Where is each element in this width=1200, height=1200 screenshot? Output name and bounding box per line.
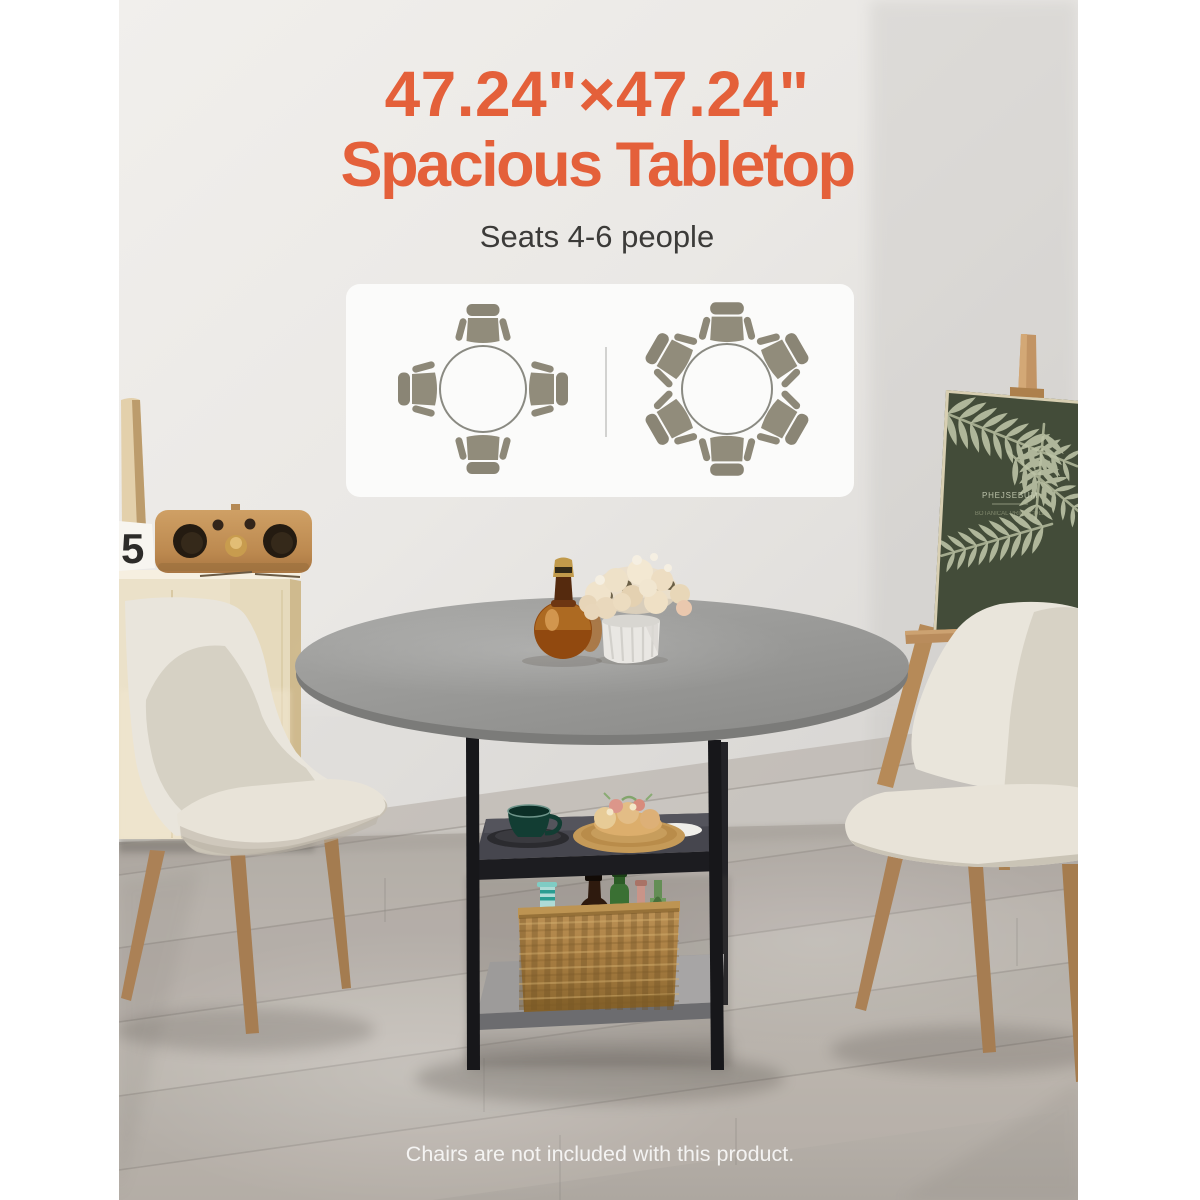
svg-text:PHEJSEBUM: PHEJSEBUM — [982, 491, 1038, 500]
svg-text:5: 5 — [121, 525, 144, 572]
svg-text:BOTANICAL PRINT COLL: BOTANICAL PRINT COLL — [975, 511, 1046, 517]
svg-text:Seats 4-6 people: Seats 4-6 people — [480, 219, 714, 254]
svg-text:Spacious Tabletop: Spacious Tabletop — [341, 130, 854, 200]
svg-text:47.24"×47.24": 47.24"×47.24" — [385, 58, 810, 130]
svg-text:Chairs are not included with t: Chairs are not included with this produc… — [406, 1142, 794, 1166]
